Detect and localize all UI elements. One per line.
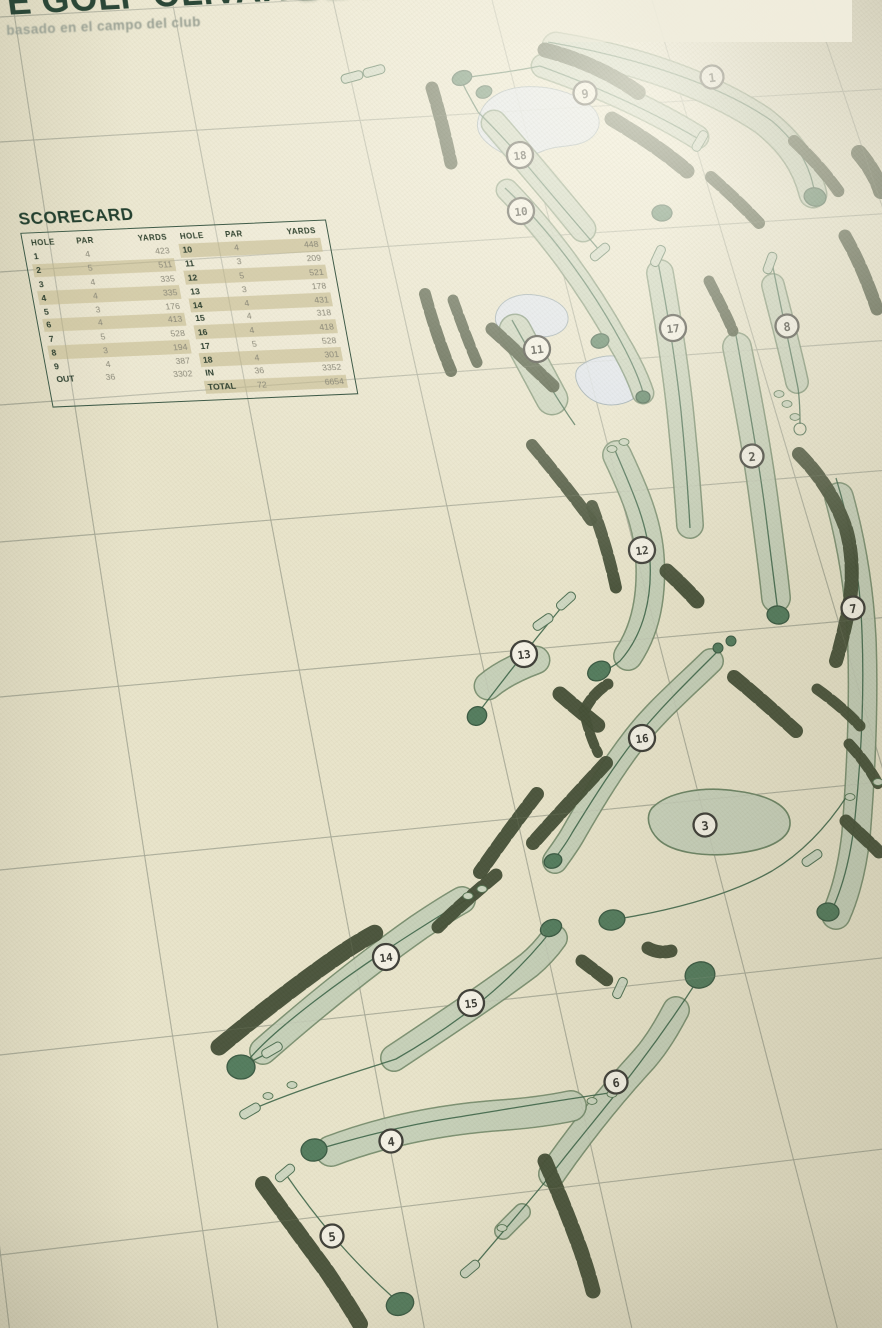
svg-text:10: 10	[514, 205, 529, 220]
scorecard-back-nine: HOLEPARYARDS1044481132091255211331781444…	[176, 225, 348, 394]
svg-text:11: 11	[530, 343, 545, 358]
svg-text:18: 18	[513, 149, 528, 164]
course-map: 191810111782127131631415645	[0, 0, 882, 1328]
svg-text:16: 16	[635, 732, 650, 747]
scorecard: SCORECARD HOLEPARYARDS144232551134335443…	[16, 197, 358, 408]
svg-text:15: 15	[464, 997, 479, 1012]
scorecard-front-nine: HOLEPARYARDS1442325511343354433553176644…	[27, 231, 197, 387]
svg-text:13: 13	[517, 648, 532, 663]
scorecard-table-frame: HOLEPARYARDS1442325511343354433553176644…	[20, 219, 358, 407]
svg-text:12: 12	[635, 544, 650, 559]
golf-course-poster: 191810111782127131631415645 E GOLF OLIVA…	[0, 0, 882, 1328]
svg-text:14: 14	[379, 951, 394, 966]
title-fade-overlay	[452, 0, 852, 42]
svg-text:17: 17	[666, 322, 681, 337]
